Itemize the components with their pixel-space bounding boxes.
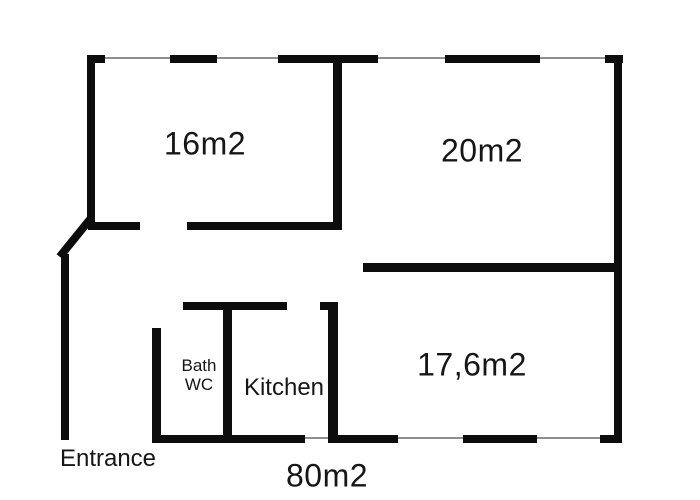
window-top-2 [217,57,278,59]
window-top-4 [540,57,605,59]
room-20-label: 20m2 [441,133,523,170]
wall-right [614,55,622,443]
room-16-label: 16m2 [164,126,246,163]
window-bottom-1 [305,437,328,439]
wall-top-segment-1 [170,55,217,63]
wall-middle-horizontal [363,263,622,272]
wall-bottom-segment-2 [328,435,398,443]
wall-left-lower [61,254,69,440]
entrance-label: Entrance [60,445,156,473]
wall-room16-bottom-left [88,222,140,230]
kitchen-label: Kitchen [244,374,324,402]
wall-top-segment-2 [278,55,378,63]
wall-divider-16-20 [333,55,342,230]
wall-left-upper [87,55,95,228]
wall-room16-bottom-right [187,222,342,230]
total-area-label: 80m2 [286,458,368,495]
window-bottom-2 [398,437,463,439]
wall-kitchen-right [328,302,338,443]
bath-wc-label: Bath WC [182,356,217,394]
window-top-1 [105,57,170,59]
wall-bottom-segment-3 [463,435,537,443]
wall-divider-bath-kitchen [223,302,232,437]
room-176-label: 17,6m2 [417,347,527,384]
wall-bath-kitchen-top [183,302,287,310]
floor-plan: 16m2 20m2 17,6m2 Bath WC Kitchen Entranc… [0,0,700,500]
window-bottom-3 [537,437,600,439]
bath-label: Bath [182,356,217,375]
wc-label: WC [182,375,217,394]
wall-bottom-corner-right [600,435,622,443]
wall-bath-left [152,328,161,443]
window-top-3 [378,57,445,59]
wall-top-segment-3 [445,55,540,63]
